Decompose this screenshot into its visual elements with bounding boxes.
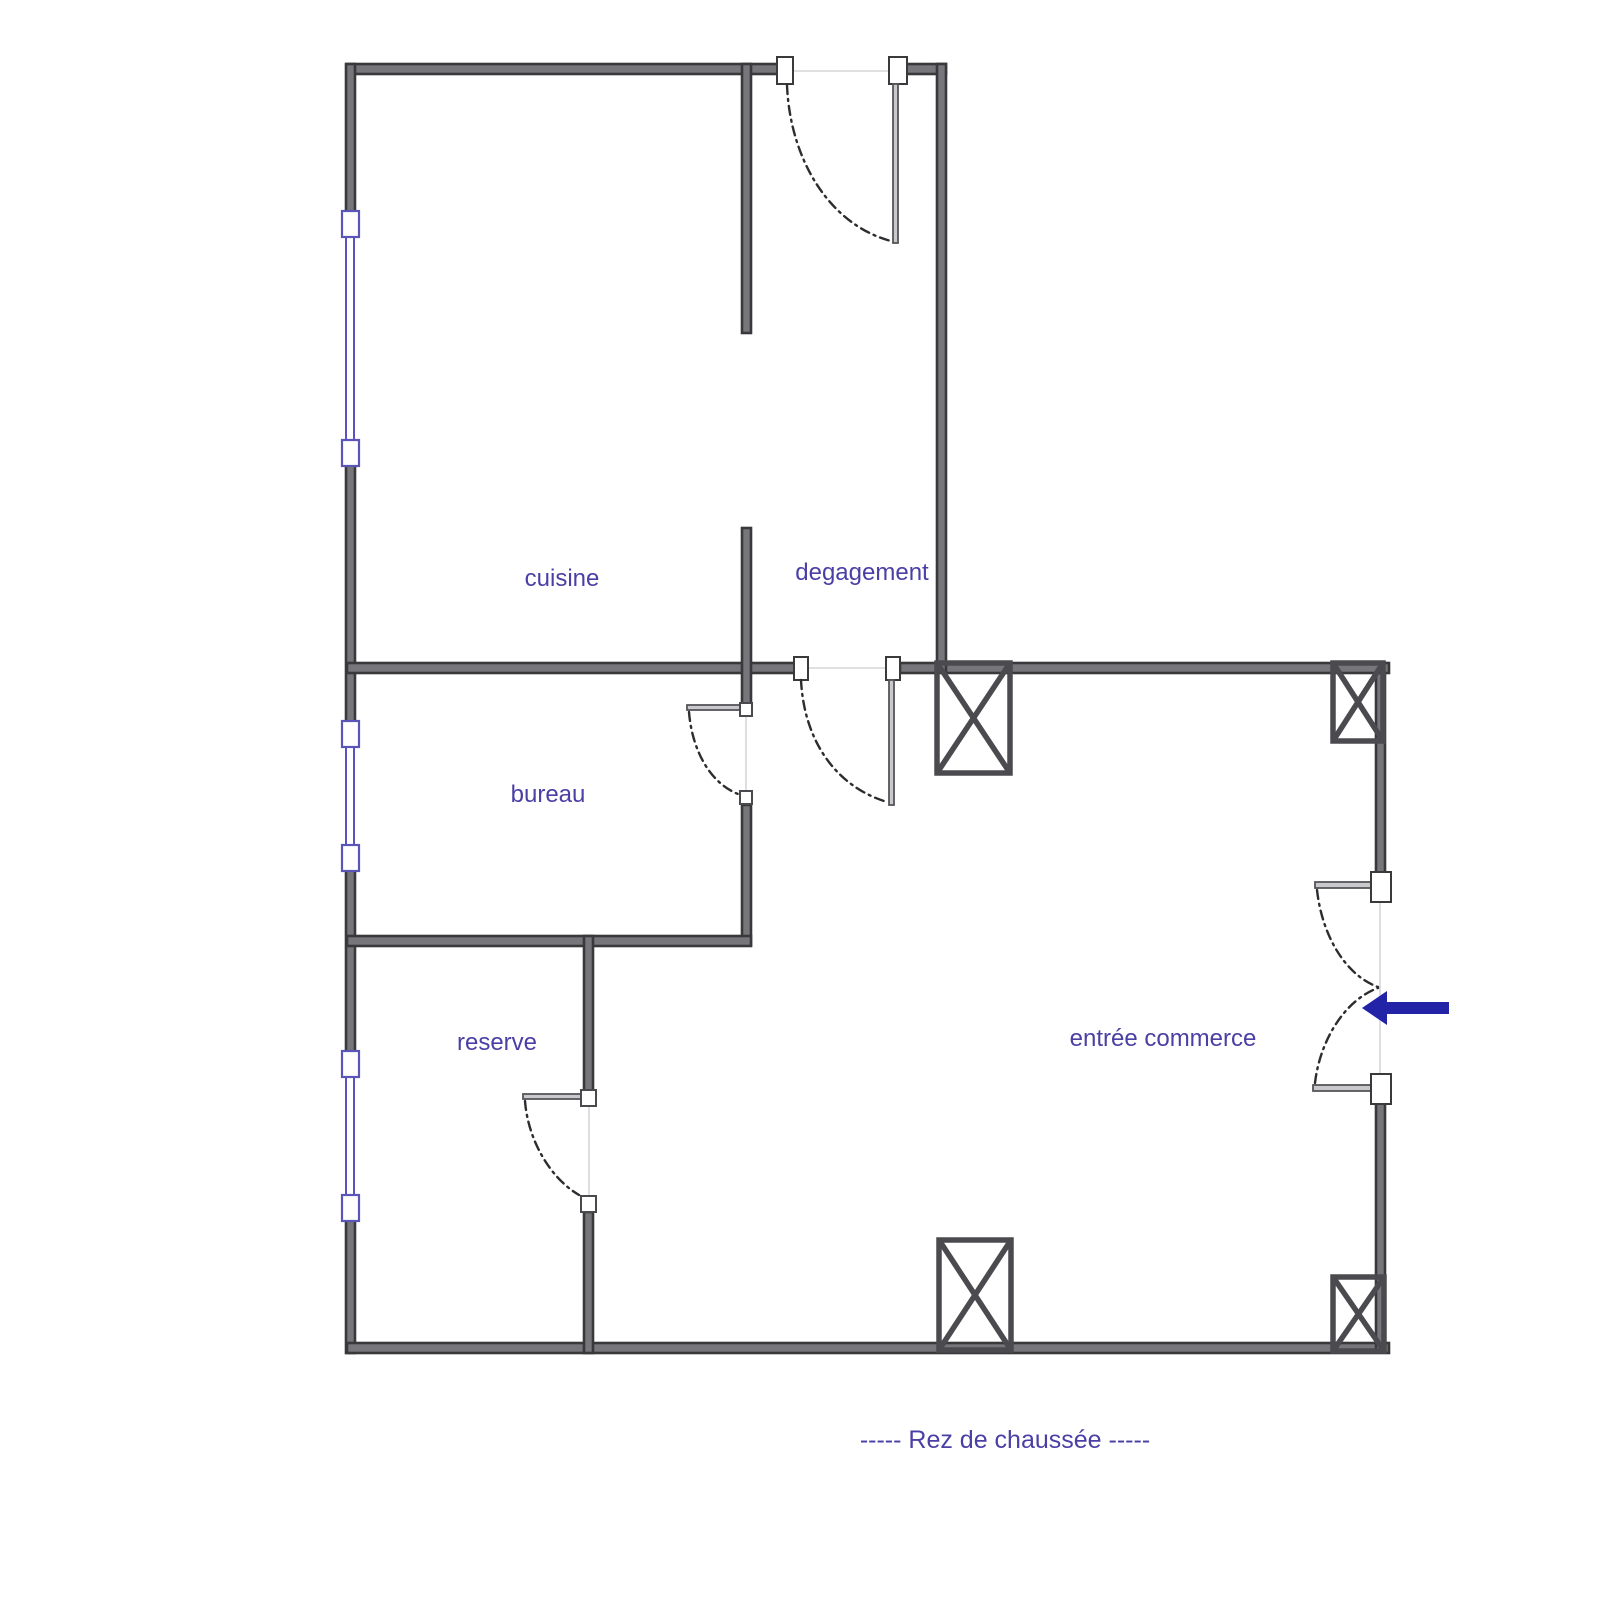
- wall-h2: [347, 936, 751, 946]
- window-pane: [346, 747, 354, 845]
- door-leaf: [889, 680, 894, 805]
- floor-plan-page: cuisine degagement bureau reserve entrée…: [0, 0, 1600, 1600]
- floor-plan-drawing: cuisine degagement bureau reserve entrée…: [0, 0, 1600, 1600]
- wall-left-seg2: [346, 464, 355, 723]
- window-end-box: [342, 845, 359, 871]
- wall-reserve-right-lower: [584, 1212, 593, 1353]
- door-frame: [1371, 872, 1391, 902]
- door-swing-arc: [1315, 988, 1378, 1083]
- door-swing-arc: [1317, 890, 1378, 987]
- door-leaf: [1315, 882, 1371, 888]
- window-end-box: [342, 211, 359, 237]
- door-swing-arc: [525, 1101, 579, 1195]
- door-frame: [889, 57, 907, 84]
- wall-v1-middle: [742, 528, 751, 704]
- door-swing-arc: [787, 85, 891, 241]
- wall-top-left: [347, 64, 779, 74]
- window-pane: [346, 1077, 354, 1195]
- wall-v1-upper: [742, 64, 751, 333]
- window-pane: [346, 237, 354, 440]
- door-degagement-top: [777, 57, 907, 243]
- door-frame: [581, 1090, 596, 1106]
- room-label-entree-commerce: entrée commerce: [1070, 1025, 1257, 1052]
- window-end-box: [342, 1195, 359, 1221]
- exterior-walls: [346, 64, 1389, 1353]
- door-frame: [777, 57, 793, 84]
- wall-v1-lower: [742, 805, 751, 945]
- wall-bottom: [347, 1343, 1389, 1353]
- window-end-box: [342, 721, 359, 747]
- window-end-box: [342, 440, 359, 466]
- door-entrance-double: [1313, 872, 1391, 1104]
- door-frame: [886, 657, 900, 680]
- floor-caption: ----- Rez de chaussée -----: [860, 1426, 1150, 1454]
- door-frame: [740, 703, 752, 716]
- door-frame: [794, 657, 808, 680]
- door-leaf: [687, 705, 740, 710]
- column-bottom-left: [939, 1240, 1011, 1350]
- interior-walls: [347, 64, 1389, 1353]
- room-label-bureau: bureau: [511, 781, 586, 808]
- door-degagement-south: [794, 657, 900, 805]
- room-label-reserve: reserve: [457, 1029, 537, 1056]
- entrance-arrow: [1362, 991, 1449, 1025]
- wall-reserve-right-upper: [584, 936, 593, 1092]
- window-end-box: [342, 1051, 359, 1077]
- column-top-left: [937, 663, 1010, 773]
- room-label-degagement: degagement: [795, 559, 929, 586]
- door-leaf: [1313, 1085, 1371, 1091]
- door-leaf: [893, 84, 898, 243]
- window-cuisine: [342, 211, 359, 466]
- door-bureau: [687, 703, 752, 804]
- wall-h1-left: [347, 663, 796, 673]
- door-reserve: [523, 1090, 596, 1212]
- door-swing-arc: [801, 680, 884, 801]
- door-swing-arc: [689, 712, 738, 794]
- room-labels: cuisine degagement bureau reserve entrée…: [457, 559, 1256, 1056]
- wall-left-seg4: [346, 1219, 355, 1353]
- wall-left-seg1: [346, 64, 355, 213]
- door-frame: [1371, 1074, 1391, 1104]
- room-label-cuisine: cuisine: [525, 565, 600, 592]
- wall-degagement-right: [937, 64, 946, 672]
- door-frame: [740, 791, 752, 804]
- wall-left-seg3: [346, 869, 355, 1053]
- door-frame: [581, 1196, 596, 1212]
- window-reserve: [342, 1051, 359, 1221]
- door-leaf: [523, 1094, 581, 1099]
- window-bureau: [342, 721, 359, 871]
